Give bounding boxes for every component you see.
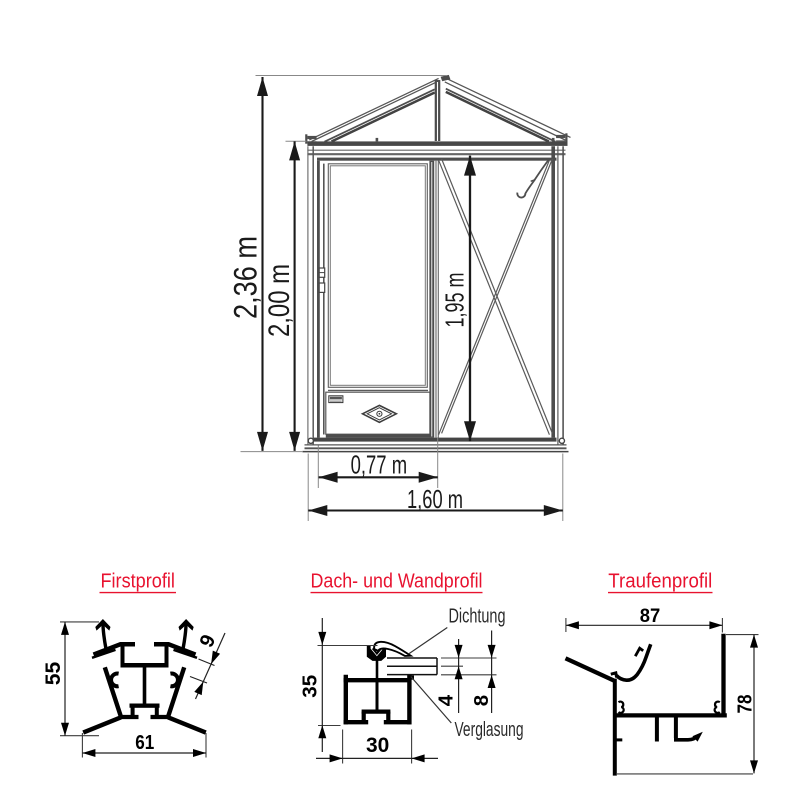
svg-text:2,00 m: 2,00 m	[263, 264, 296, 337]
svg-text:1,60 m: 1,60 m	[407, 484, 463, 514]
svg-text:35: 35	[300, 675, 322, 698]
svg-text:87: 87	[640, 606, 661, 627]
svg-text:8: 8	[470, 695, 493, 706]
svg-text:0,77 m: 0,77 m	[351, 449, 408, 479]
svg-text:61: 61	[135, 732, 154, 754]
svg-text:Dach- und Wandprofil: Dach- und Wandprofil	[311, 571, 483, 593]
svg-text:Firstprofil: Firstprofil	[100, 571, 175, 593]
svg-text:4: 4	[435, 694, 458, 706]
svg-text:Traufenprofil: Traufenprofil	[608, 571, 712, 593]
svg-text:Dichtung: Dichtung	[449, 605, 506, 627]
svg-text:Verglasung: Verglasung	[455, 718, 524, 741]
svg-text:78: 78	[735, 695, 757, 714]
svg-text:1,95 m: 1,95 m	[440, 273, 470, 328]
svg-text:30: 30	[366, 734, 389, 757]
svg-text:55: 55	[42, 661, 65, 685]
svg-text:2,36 m: 2,36 m	[228, 236, 264, 319]
